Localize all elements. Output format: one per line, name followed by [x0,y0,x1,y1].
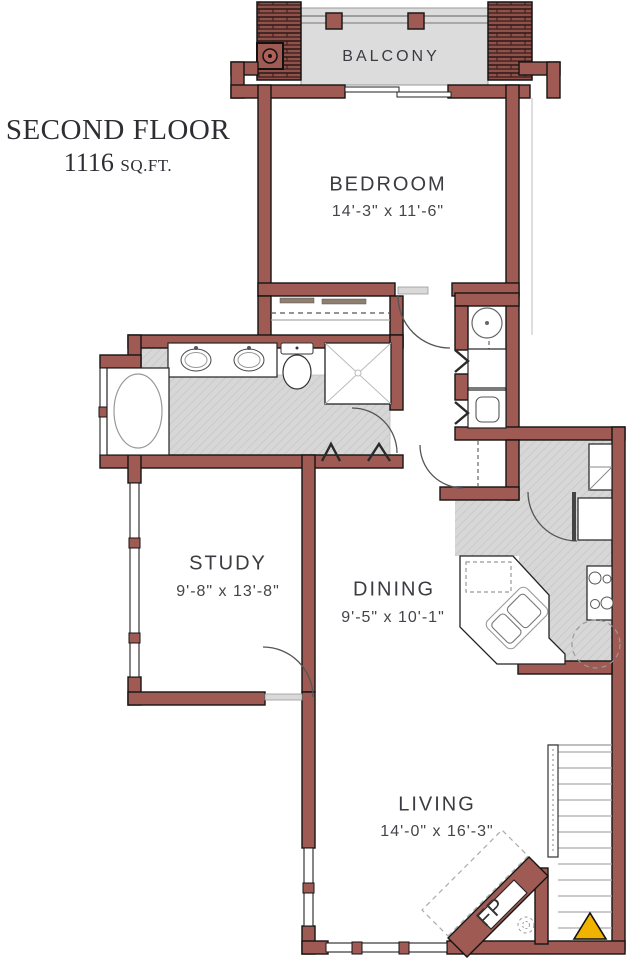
living-window-south [326,943,447,952]
living-dims: 14'-0" x 16'-3" [380,823,493,841]
toilet-bowl [283,355,311,389]
floorplan-page: FP SECOND FLOOR 1116 SQ.FT. BALCONY BEDR… [0,0,635,960]
plan-title: SECOND FLOOR [2,114,234,147]
bifold-door-icon [455,350,468,372]
utility-fixtures [468,308,506,428]
plan-title-block: SECOND FLOOR 1116 SQ.FT. [2,114,234,178]
area-value: 1116 [64,148,114,177]
balcony-sliding-door [345,87,451,97]
washer [468,349,506,388]
study-window [130,483,139,677]
bifold-door-icon [455,402,468,424]
balcony-label: BALCONY [342,48,439,66]
pantry-door [420,445,463,488]
study-label: STUDY [189,553,267,576]
living-label: LIVING [398,794,476,817]
balcony-post [408,13,424,29]
plan-area: 1116 SQ.FT. [2,148,234,178]
study-dims: 9'-8" x 13'-8" [176,583,280,601]
bedroom-closet [271,298,390,320]
area-unit: SQ.FT. [120,156,172,175]
stairs [548,745,612,928]
kitchen-cabinet [578,498,612,540]
dining-label: DINING [353,579,435,602]
fireplace: FP [422,830,534,936]
bedroom-door [398,296,450,348]
attention-triangle-icon [574,913,606,939]
bedroom-label: BEDROOM [329,174,446,197]
dining-dims: 9'-5" x 10'-1" [341,609,445,627]
balcony-post [326,13,342,29]
bedroom-dims: 14'-3" x 11'-6" [332,203,444,221]
